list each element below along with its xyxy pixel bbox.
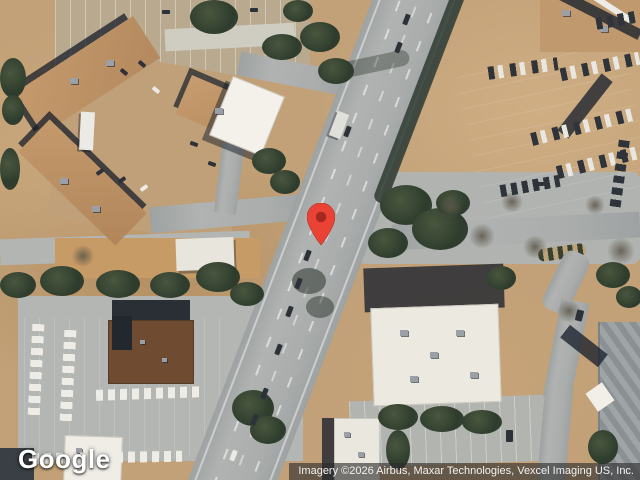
tree — [318, 58, 354, 84]
bare-tree — [70, 246, 96, 266]
tree — [150, 272, 190, 298]
rooftop-unit — [470, 372, 478, 378]
car — [162, 10, 170, 14]
bare-tree — [584, 196, 606, 214]
rooftop-unit — [410, 376, 418, 382]
rooftop-unit — [456, 330, 464, 336]
tree — [2, 95, 24, 125]
tree — [0, 58, 26, 98]
tree — [270, 170, 300, 194]
tree — [0, 272, 36, 298]
tree — [96, 270, 140, 298]
location-pin-marker[interactable] — [307, 203, 335, 245]
tree — [596, 262, 630, 288]
tree — [283, 0, 313, 22]
location-pin-icon — [307, 203, 335, 245]
rooftop-unit — [92, 206, 100, 212]
rooftop-unit — [358, 452, 364, 457]
car — [506, 430, 513, 442]
rooftop-unit — [60, 178, 68, 184]
tree — [420, 406, 464, 432]
car — [536, 182, 544, 186]
tree — [230, 282, 264, 306]
bare-tree — [438, 196, 464, 218]
bare-tree — [468, 224, 496, 248]
tree — [588, 430, 618, 464]
tree — [0, 148, 20, 190]
white-truck — [79, 112, 95, 151]
tree — [40, 266, 84, 296]
car — [250, 8, 258, 12]
tree — [616, 286, 640, 308]
tree — [462, 410, 502, 434]
rooftop-unit — [140, 340, 145, 344]
pin-dot — [316, 212, 327, 223]
google-logo[interactable]: Google — [18, 444, 111, 475]
satellite-map[interactable]: Google Imagery ©2026 Airbus, Maxar Techn… — [0, 0, 640, 480]
rooftop-unit — [106, 60, 114, 66]
rooftop-unit — [215, 108, 223, 114]
rooftop-unit — [400, 330, 408, 336]
rooftop-unit — [162, 358, 167, 362]
tree — [190, 0, 238, 34]
bare-tree — [606, 238, 636, 264]
tree-shadow — [306, 296, 334, 318]
tree — [368, 228, 408, 258]
rooftop-unit — [70, 78, 78, 84]
rooftop-unit — [430, 352, 438, 358]
tree — [378, 404, 418, 430]
tree — [300, 22, 340, 52]
tree — [486, 266, 516, 290]
map-attribution: Imagery ©2026 Airbus, Maxar Technologies… — [289, 463, 640, 480]
tree — [262, 34, 302, 60]
bare-tree — [522, 236, 548, 258]
rooftop-unit — [344, 432, 350, 437]
building-dark-roof — [112, 316, 132, 350]
rooftop-unit — [562, 10, 570, 16]
pin-body — [307, 203, 335, 245]
